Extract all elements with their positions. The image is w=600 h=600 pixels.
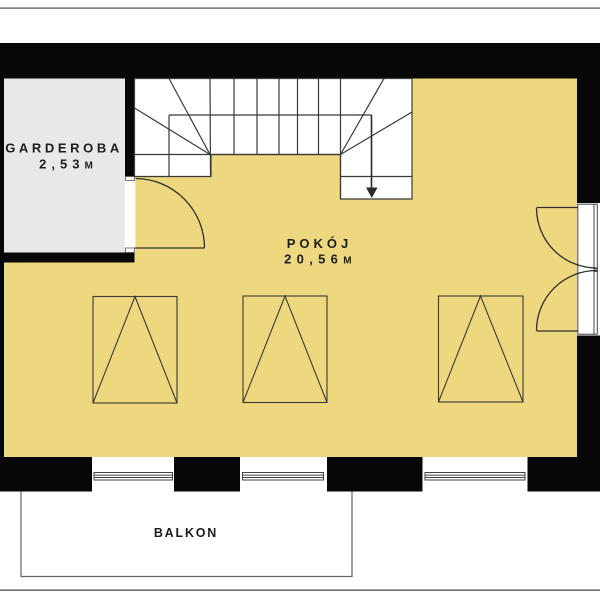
svg-text:POKÓJ: POKÓJ xyxy=(287,236,353,251)
svg-text:GARDEROBA: GARDEROBA xyxy=(5,141,123,156)
svg-text:BALKON: BALKON xyxy=(154,526,218,540)
